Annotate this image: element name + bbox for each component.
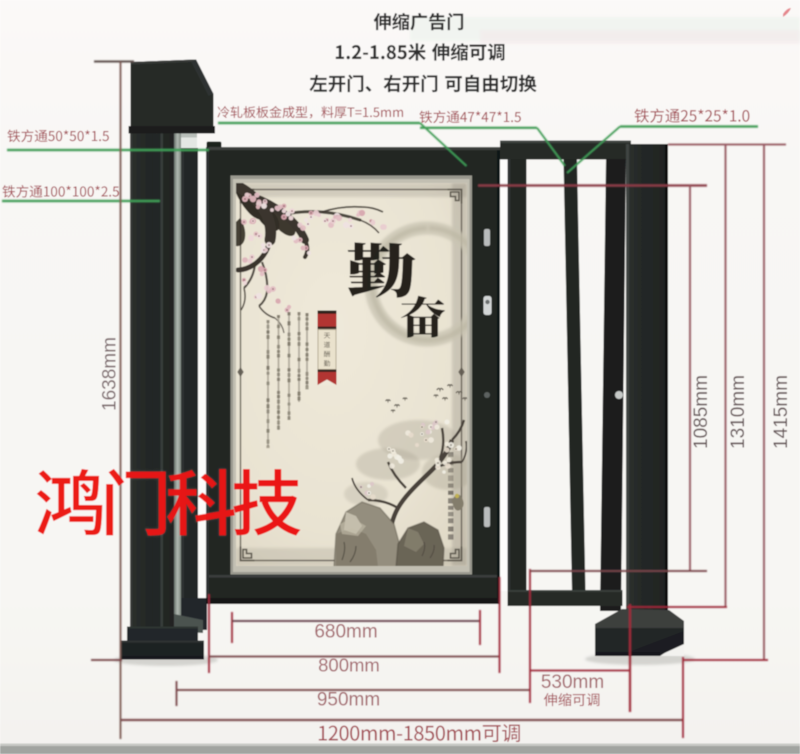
svg-text:950mm: 950mm (317, 690, 380, 711)
svg-text:1415mm: 1415mm (771, 375, 792, 449)
svg-text:530mm: 530mm (541, 672, 604, 693)
svg-text:1310mm: 1310mm (728, 375, 749, 449)
svg-text:680mm: 680mm (314, 622, 377, 643)
svg-text:1638mm: 1638mm (100, 337, 121, 411)
svg-text:1085mm: 1085mm (691, 375, 712, 449)
svg-text:800mm: 800mm (318, 655, 380, 676)
